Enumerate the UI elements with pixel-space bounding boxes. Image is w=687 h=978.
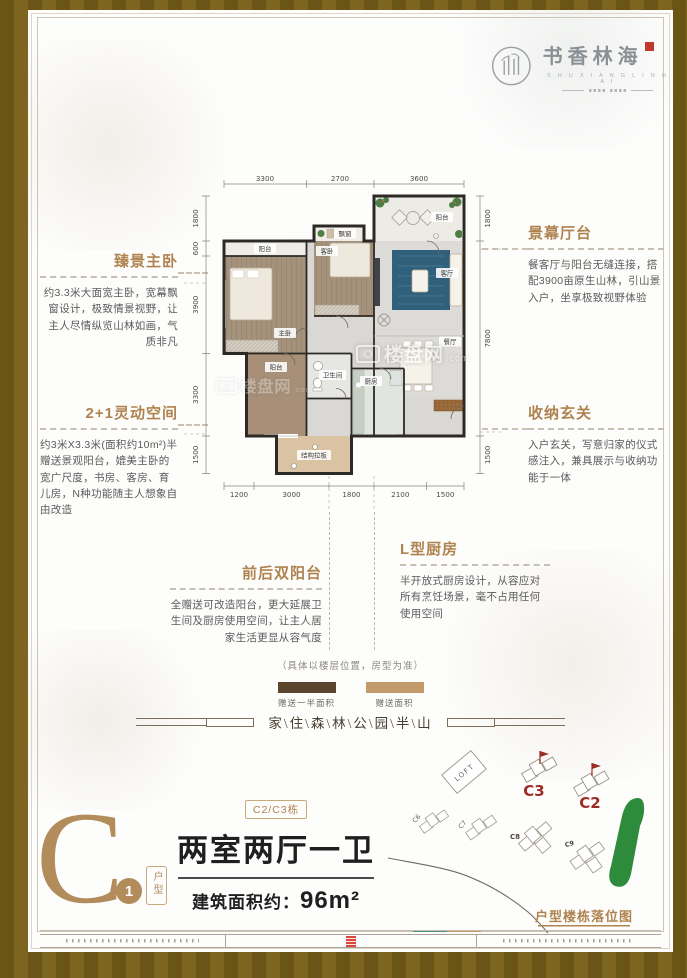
- svg-text:600: 600: [191, 241, 200, 255]
- label-living: 客厅: [436, 268, 458, 278]
- leader-dash: [329, 512, 330, 650]
- callout-master-bedroom: 臻景主卧 约3.3米大面宽主卧，宽幕飘窗设计，极致情景视野，让主人尽情纵览山林如…: [40, 250, 178, 350]
- callout-title: 臻景主卧: [40, 250, 178, 278]
- callout-body: 约3.3米大面宽主卧，宽幕飘窗设计，极致情景视野，让主人尽情纵览山林如画，气质非…: [40, 285, 178, 350]
- svg-text:1500: 1500: [483, 445, 492, 464]
- callout-title: L型厨房: [400, 538, 550, 566]
- label-c8: C8: [510, 833, 520, 841]
- svg-text:卫生间: 卫生间: [323, 371, 343, 380]
- footer-ticks-right: [477, 934, 662, 948]
- footer-center-cell: [225, 934, 477, 948]
- svg-text:1200: 1200: [230, 490, 249, 499]
- footer-ticks-left: [40, 934, 225, 948]
- unit-info: C2/C3栋 两室两厅一卫 建筑面积约：96m²: [176, 800, 376, 915]
- road-line: [388, 858, 548, 933]
- svg-text:3600: 3600: [410, 174, 429, 183]
- legend-item-gift: 赠送面积: [366, 682, 424, 709]
- svg-text:3300: 3300: [256, 174, 275, 183]
- callout-flex-space: 2+1灵动空间 约3米X3.3米(面积约10m²)半赠送景观阳台，媲美主卧的宽广…: [40, 402, 178, 518]
- svg-text:1500: 1500: [436, 490, 455, 499]
- title-rule: [178, 877, 374, 879]
- label-master: 主卧: [274, 328, 296, 338]
- slogan-deco-left: [136, 718, 254, 727]
- unit-number-badge: 1: [116, 878, 142, 904]
- logo-text-block: 书香林海 S H U X I A N G L I N H A I: [543, 40, 673, 92]
- label-slab: 结构拉板: [297, 450, 331, 460]
- svg-text:客卧: 客卧: [321, 247, 335, 256]
- camera-icon: [356, 345, 380, 363]
- svg-text:1800: 1800: [191, 209, 200, 228]
- footer-strip: [40, 934, 661, 948]
- callout-body: 餐客厅与阳台无缝连接，搭配3900亩原生山林，引山景入户，坐享极致视野体验: [528, 257, 664, 306]
- unit-type-badge: 户型: [146, 866, 167, 905]
- svg-text:阳台: 阳台: [436, 213, 449, 222]
- label-c2: C2: [579, 794, 600, 812]
- svg-text:结构拉板: 结构拉板: [301, 451, 328, 460]
- slogan-text: 家\住\森\林\公\园\半\山: [268, 712, 432, 732]
- camera-icon: [217, 378, 237, 393]
- footer-seal-icon: [346, 936, 356, 947]
- logo-emblem-icon: [490, 43, 533, 89]
- building-c2: [572, 767, 609, 797]
- building-c8: [516, 818, 560, 861]
- unit-area: 建筑面积约：96m²: [176, 887, 376, 915]
- label-c3: C3: [523, 782, 544, 800]
- svg-text:1800: 1800: [483, 209, 492, 228]
- brand-logo: 书香林海 S H U X I A N G L I N H A I: [490, 40, 673, 92]
- svg-text:7800: 7800: [483, 329, 492, 348]
- svg-text:阳台: 阳台: [270, 363, 283, 372]
- svg-text:1500: 1500: [191, 445, 200, 464]
- callout-body: 约3米X3.3米(面积约10m²)半赠送景观阳台，媲美主卧的宽广尺度，书房、客房…: [40, 437, 178, 518]
- svg-text:2100: 2100: [391, 490, 410, 499]
- label-bay-window: 飘窗: [334, 229, 356, 239]
- callout-body: 半开放式厨房设计，从容应对所有烹饪场景，毫不占用任何使用空间: [400, 573, 550, 622]
- callout-l-kitchen: L型厨房 半开放式厨房设计，从容应对所有烹饪场景，毫不占用任何使用空间: [400, 538, 550, 622]
- svg-text:2700: 2700: [331, 174, 350, 183]
- building-c7: [464, 812, 497, 840]
- label-balcony-bottom: 阳台: [265, 362, 287, 372]
- unit-title: 两室两厅一卫: [176, 825, 376, 870]
- callout-title: 景幕厅台: [528, 222, 664, 250]
- park-area: [609, 798, 644, 887]
- label-c7: C7: [457, 819, 469, 831]
- svg-text:主卧: 主卧: [279, 329, 293, 338]
- callout-double-balcony: 前后双阳台 全赠送可改造阳台，更大延展卫生间及厨房使用空间，让主人居家生活更显从…: [170, 562, 322, 646]
- site-location-map: LOFT C3 C2 C6 C7 C8 C: [388, 740, 662, 940]
- label-c9: C9: [564, 839, 576, 849]
- label-balcony-top: 阳台: [254, 244, 276, 254]
- slogan-deco-right: [447, 718, 565, 727]
- svg-text:厨房: 厨房: [365, 377, 378, 386]
- callout-body: 入户玄关，写意归家的仪式感注入，兼具展示与收纳功能于一体: [528, 437, 664, 486]
- svg-text:阳台: 阳台: [259, 244, 272, 253]
- brand-seal-icon: [645, 42, 654, 51]
- label-terrace: 阳台: [431, 212, 453, 222]
- label-kitchen: 厨房: [360, 376, 382, 386]
- unit-letter: C: [36, 792, 124, 924]
- watermark: 楼盘网.com: [217, 374, 314, 397]
- callout-title: 收纳玄关: [528, 402, 664, 430]
- brand-letters: S H U X I A N G L I N H A I: [543, 73, 673, 85]
- leader-dash: [374, 512, 375, 650]
- watermark: 楼盘网.com: [356, 340, 470, 367]
- svg-text:3000: 3000: [282, 490, 301, 499]
- legend-item-half-gift: 赠送一半面积: [278, 682, 336, 709]
- svg-text:3900: 3900: [191, 295, 200, 314]
- sitemap-title-underline: [538, 925, 630, 927]
- disclaimer-note: （具体以楼层位置，房型为准）: [28, 658, 673, 672]
- callout-title: 2+1灵动空间: [40, 402, 178, 430]
- building-loft: LOFT: [442, 751, 487, 794]
- svg-text:飘窗: 飘窗: [339, 229, 352, 238]
- building-c6: [417, 806, 448, 833]
- svg-text:1800: 1800: [342, 490, 361, 499]
- footer-top-line: [40, 930, 661, 931]
- label-guest: 客卧: [316, 246, 338, 256]
- legend-swatch-tan: [366, 682, 424, 693]
- poster-page: 书香林海 S H U X I A N G L I N H A I 臻景主卧 约3…: [28, 10, 673, 952]
- label-c6: C6: [411, 813, 423, 825]
- building-c3: [520, 753, 557, 783]
- building-c9: [568, 838, 612, 880]
- callout-view-balcony: 景幕厅台 餐客厅与阳台无缝连接，搭配3900亩原生山林，引山景入户，坐享极致视野…: [528, 222, 664, 306]
- brand-tagline: [543, 89, 673, 92]
- svg-text:客厅: 客厅: [441, 269, 455, 278]
- sitemap-title: 户型楼栋落位图: [535, 909, 633, 925]
- area-legend: 赠送一半面积 赠送面积: [28, 682, 673, 709]
- callout-title: 前后双阳台: [170, 562, 322, 590]
- label-bath: 卫生间: [319, 370, 346, 380]
- svg-text:3300: 3300: [191, 385, 200, 404]
- callout-body: 全赠送可改造阳台，更大延展卫生间及厨房使用空间，让主人居家生活更显从容气度: [170, 597, 322, 646]
- slogan-row: 家\住\森\林\公\园\半\山: [28, 712, 673, 732]
- legend-swatch-dark: [278, 682, 336, 693]
- callout-entry-storage: 收纳玄关 入户玄关，写意归家的仪式感注入，兼具展示与收纳功能于一体: [528, 402, 664, 486]
- building-badge: C2/C3栋: [245, 800, 307, 819]
- brand-name: 书香林海: [543, 40, 643, 69]
